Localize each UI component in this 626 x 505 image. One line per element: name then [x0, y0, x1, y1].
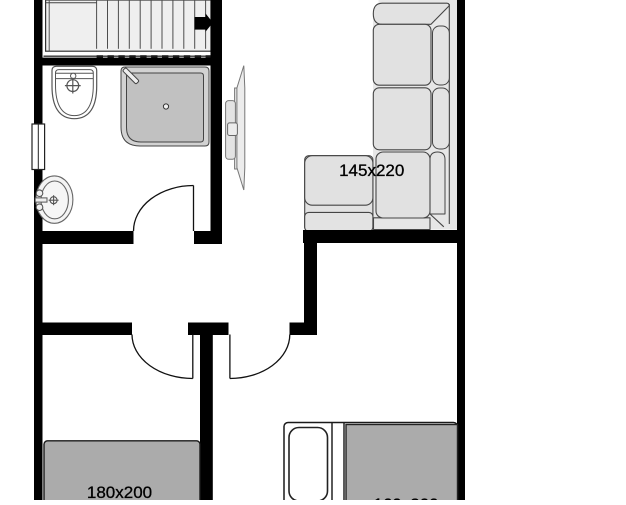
svg-text:145x220: 145x220 [339, 161, 404, 180]
svg-text:180x200: 180x200 [87, 483, 152, 500]
svg-text:160x200: 160x200 [373, 495, 438, 500]
